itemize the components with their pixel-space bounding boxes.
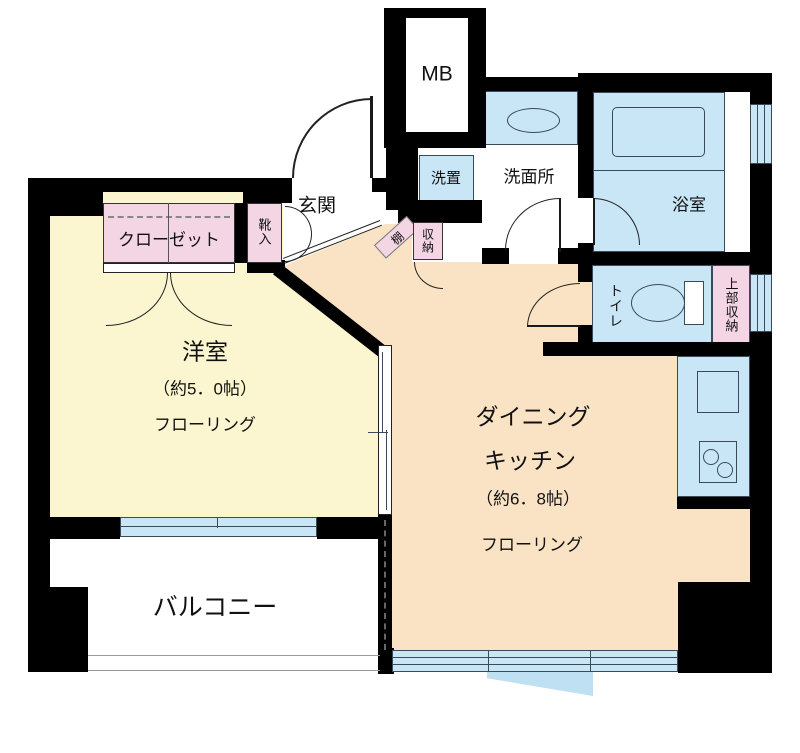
balcony-rail-line1: [88, 655, 380, 656]
toilet-window: [750, 274, 772, 332]
sliding-door-line-1: [382, 352, 383, 432]
western-room-window: [120, 517, 317, 537]
kitchen-sink: [697, 371, 739, 413]
washroom-door-gap: [509, 248, 558, 264]
dk-window: [392, 650, 678, 672]
toilet-label: トイレ: [606, 284, 626, 329]
washroom-label: 洗面所: [504, 169, 555, 188]
wall-balcony-step: [50, 587, 88, 672]
wall-closet-right: [235, 203, 247, 263]
storage-label: 収納: [420, 228, 437, 254]
closet-dashed-line: [108, 216, 230, 218]
stove-burner-2: [717, 462, 733, 478]
bathtub: [612, 107, 705, 157]
washer-space-label: 洗置: [431, 171, 461, 188]
toilet-door-gap: [578, 282, 592, 325]
dk-size: （約6．8帖）: [476, 491, 580, 510]
washroom-door-leaf: [559, 198, 561, 252]
dk-window-flap: [487, 672, 593, 696]
balcony-rail-line2: [88, 670, 380, 671]
bathroom-door-gap: [578, 198, 593, 243]
washroom-door-arc: [505, 198, 560, 250]
wall-bath-bottom: [578, 252, 772, 265]
bathroom-window: [750, 104, 772, 164]
western-room-name: 洋室: [182, 339, 228, 364]
stove-burner-1: [703, 449, 719, 465]
dk-name-line1: ダイニング: [476, 404, 591, 429]
toilet-door-leaf: [527, 325, 580, 327]
wall-toilet-west-1: [578, 265, 592, 282]
toilet-bowl: [631, 284, 685, 322]
sliding-door: [378, 345, 392, 515]
wall-west-window-a: [44, 517, 120, 539]
wall-shoe-top: [243, 178, 292, 203]
wall-washroom-bottom-a: [482, 248, 509, 264]
meter-box-label: MB: [421, 62, 453, 85]
western-room-window-tick: [217, 517, 218, 528]
entrance-door-arc: [292, 98, 372, 178]
balcony-divider-dashed: [384, 520, 386, 650]
wall-west-window-b: [317, 517, 378, 539]
wall-bath-top: [578, 73, 772, 92]
toilet-window-line2: [764, 275, 765, 331]
balcony-label: バルコニー: [153, 594, 278, 622]
western-room-size: （約5．0帖）: [153, 381, 257, 400]
wall-washroom-bottom-b: [558, 248, 578, 264]
western-room-flooring: フローリング: [154, 417, 256, 436]
sliding-door-line-2: [386, 430, 387, 510]
wall-washroom-top: [482, 77, 582, 91]
dk-bottom-floor: [385, 582, 678, 650]
upper-storage-label: 上部収納: [722, 277, 741, 333]
wall-corner-se: [678, 582, 772, 673]
dk-name-line2: キッチン: [484, 448, 576, 473]
dk-flooring: フローリング: [481, 537, 583, 556]
toilet-tank: [684, 281, 704, 325]
western-room-window-midline: [121, 526, 316, 527]
bathroom-window-line1: [757, 105, 758, 163]
bathroom-window-line2: [764, 105, 765, 163]
wall-wash-bath-1: [578, 92, 593, 198]
floor-plan: MB: [0, 0, 800, 753]
shoe-cabinet-label: 靴入: [255, 218, 274, 246]
bathroom-door-leaf: [593, 198, 595, 245]
entrance-label: 玄関: [298, 197, 336, 218]
closet-label: クローゼット: [118, 232, 220, 251]
wall-left-outer: [28, 178, 50, 672]
dk-window-mullion2: [590, 650, 591, 672]
dk-window-mullion1: [488, 650, 489, 672]
wall-topleft-stub: [28, 192, 103, 216]
entrance-door-leaf: [370, 96, 373, 178]
bathroom-label: 浴室: [672, 197, 706, 216]
washroom-sink-oval: [507, 108, 560, 133]
wall-kitchen-north: [543, 342, 772, 356]
dk-window-line1: [393, 657, 677, 658]
wall-kitchen-south: [677, 497, 772, 509]
dk-window-line2: [393, 664, 677, 665]
toilet-window-line1: [757, 275, 758, 331]
sliding-door-tick: [368, 432, 388, 433]
closet-door-track: [103, 263, 235, 273]
bathroom-divider-line: [593, 170, 725, 171]
